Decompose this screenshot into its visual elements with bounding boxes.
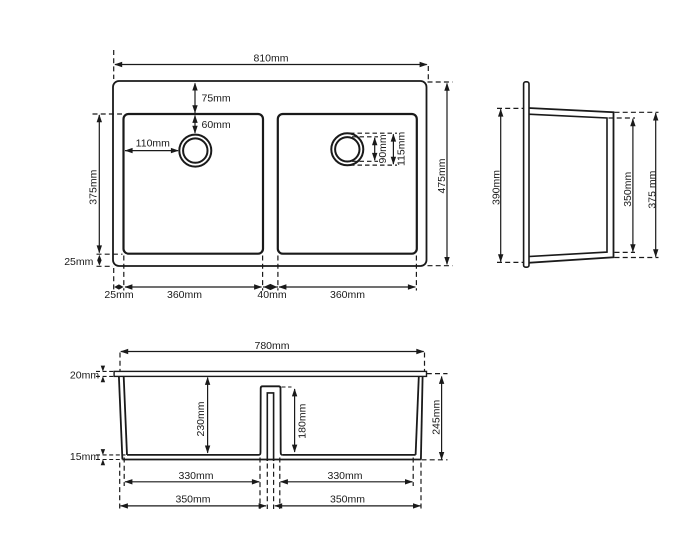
svg-text:475mm: 475mm (436, 158, 448, 193)
svg-text:15mm: 15mm (70, 451, 99, 463)
svg-text:350mm: 350mm (330, 494, 365, 506)
svg-text:115mm: 115mm (396, 132, 408, 166)
svg-text:810mm: 810mm (253, 52, 288, 64)
svg-text:780mm: 780mm (254, 340, 289, 352)
svg-text:25mm: 25mm (64, 256, 93, 268)
svg-text:110mm: 110mm (136, 137, 170, 149)
svg-text:230mm: 230mm (195, 401, 207, 436)
svg-text:360mm: 360mm (167, 289, 202, 301)
svg-text:90mm: 90mm (377, 134, 389, 163)
svg-text:330mm: 330mm (327, 470, 362, 482)
svg-text:330mm: 330mm (178, 470, 213, 482)
svg-text:60mm: 60mm (202, 119, 231, 131)
svg-text:375 mm: 375 mm (646, 170, 658, 208)
svg-text:40mm: 40mm (257, 289, 286, 301)
svg-text:245mm: 245mm (431, 400, 443, 435)
svg-text:350mm: 350mm (622, 172, 634, 207)
svg-text:375mm: 375mm (88, 169, 100, 204)
svg-text:390mm: 390mm (490, 170, 502, 205)
svg-text:350mm: 350mm (175, 494, 210, 506)
svg-text:360mm: 360mm (330, 289, 365, 301)
svg-text:20mm: 20mm (70, 369, 99, 381)
svg-text:180mm: 180mm (296, 403, 308, 438)
svg-text:75mm: 75mm (202, 93, 231, 105)
svg-text:25mm: 25mm (104, 289, 133, 301)
